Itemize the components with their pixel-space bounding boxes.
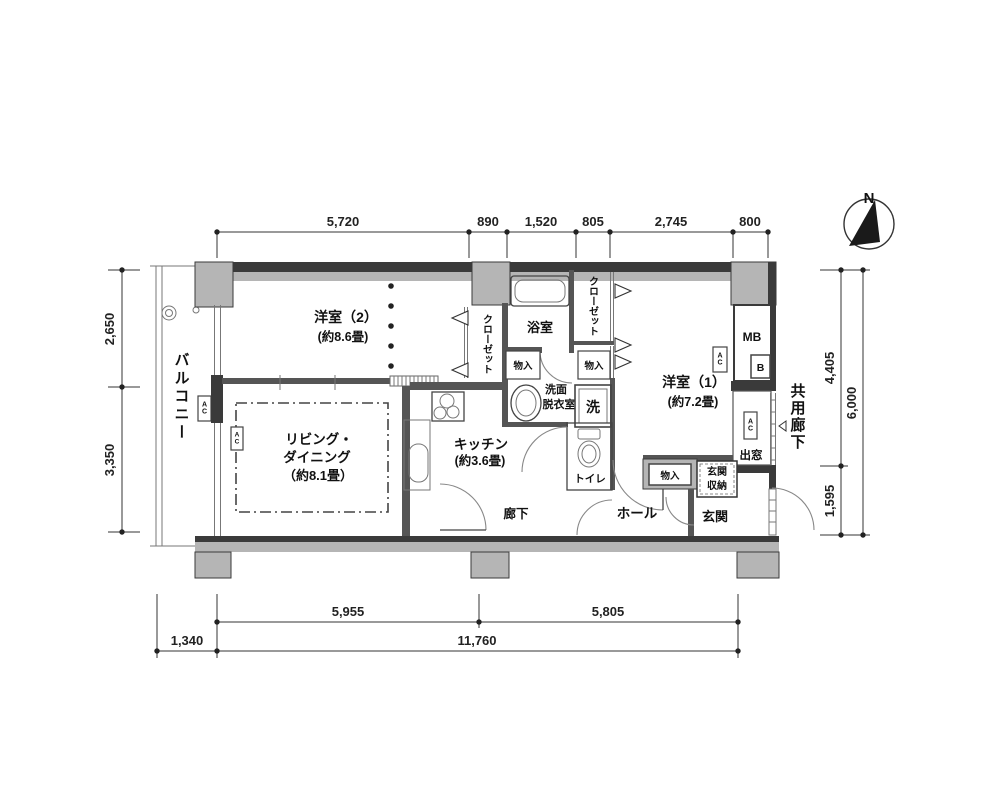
dim-bottom-4: 11,760 [457, 633, 496, 648]
storage-hall-label: 物入 [660, 470, 680, 482]
closet-left-label: クローゼット [481, 314, 493, 374]
dim-bottom-1: 5,955 [332, 604, 365, 619]
balcony-label: バルコニー [173, 352, 190, 442]
dim-right-3: 6,000 [844, 387, 859, 420]
washer-label: 洗 [586, 399, 600, 415]
dim-right-2: 1,595 [822, 485, 837, 518]
pillar-bottom-left [195, 552, 231, 578]
entrance-storage-label-2: 収納 [707, 479, 727, 492]
dimension-left: 2,650 3,350 [102, 267, 140, 534]
folding-door-arrow-icon [452, 311, 468, 325]
corridor-label: 廊下 [503, 506, 529, 521]
pillar-top-middle [472, 262, 510, 305]
closet-right: クローゼット 物入 [572, 272, 631, 490]
balcony-drain-icon [193, 307, 199, 313]
living-label-1: リビング・ [285, 431, 353, 447]
pillar-bottom-middle [471, 552, 509, 578]
entrance-storage-label-1: 玄関 [707, 465, 727, 478]
dim-left-1: 2,650 [102, 313, 117, 346]
storage-left-label: 物入 [513, 360, 533, 372]
ac-label-living: AC [234, 432, 241, 446]
dim-top-3: 1,520 [525, 214, 558, 229]
ac-label-room1: AC [717, 353, 724, 367]
room2-bedroom: 洋室（2） (約8.6畳) [222, 283, 438, 390]
meter-box: MB B [734, 305, 771, 381]
bay-window-label: 出窓 [740, 448, 763, 462]
floorplan-svg: N 5,720 890 1,520 805 2,745 800 2,650 3,… [0, 0, 999, 801]
living-dining: リビング・ ダイニング （約8.1畳） AC [231, 403, 388, 512]
kitchen-label: キッチン [454, 437, 508, 452]
pillar-top-left [195, 262, 233, 307]
compass: N [844, 190, 894, 249]
ac-label-bay: AC [747, 419, 754, 433]
dim-top-4: 805 [582, 214, 604, 229]
bay-window: AC 出窓 [733, 391, 786, 465]
toilet-label: トイレ [574, 473, 606, 485]
living-label-2: ダイニング [283, 449, 351, 465]
room2-label: 洋室（2） [314, 309, 378, 325]
dim-top-5: 2,745 [655, 214, 688, 229]
washroom-label-2: 脱衣室 [543, 397, 576, 411]
dimension-bottom: 5,955 5,805 1,340 11,760 [154, 594, 740, 658]
left-wall-stub [211, 375, 223, 423]
pillar-bottom-right [737, 552, 779, 578]
balcony: バルコニー AC [150, 266, 211, 546]
hall-label: ホール [617, 506, 658, 521]
living-label-3: （約8.1畳） [283, 468, 353, 483]
dim-left-2: 3,350 [102, 444, 117, 477]
toilet-tank-icon [578, 429, 600, 439]
dimension-top: 5,720 890 1,520 805 2,745 800 [214, 214, 770, 258]
storage-right-label: 物入 [584, 360, 604, 372]
room1-size-label: (約7.2畳) [668, 394, 719, 409]
floorplan-page: N 5,720 890 1,520 805 2,745 800 2,650 3,… [0, 0, 999, 801]
ac-label-balcony: AC [201, 402, 208, 416]
dim-bottom-3: 1,340 [171, 633, 204, 648]
room2-size-label: (約8.6畳) [318, 329, 369, 344]
kitchen-sink-icon [409, 444, 428, 482]
common-corridor-label: 共用廊下 [789, 383, 806, 451]
dim-right-1: 4,405 [822, 352, 837, 385]
stove-icon [432, 392, 464, 421]
room1-label: 洋室（1） [662, 374, 726, 390]
closet-left: クローゼット [452, 303, 508, 426]
kitchen: キッチン (約3.6畳) [402, 382, 508, 536]
dim-top-2: 890 [477, 214, 499, 229]
kitchen-size-label: (約3.6畳) [455, 453, 506, 468]
bath-label: 浴室 [527, 320, 553, 335]
window-arrow-icon [779, 421, 786, 431]
mb-label: MB [743, 330, 762, 344]
dimension-right: 4,405 1,595 6,000 [820, 267, 870, 537]
b-label: B [757, 362, 765, 374]
folding-door-arrow-icon [615, 338, 631, 352]
entrance-label: 玄関 [702, 509, 728, 524]
entrance-door [769, 488, 814, 535]
folding-door-arrow-icon [615, 284, 631, 298]
dim-top-1: 5,720 [327, 214, 360, 229]
dim-bottom-2: 5,805 [592, 604, 625, 619]
folding-door-arrow-icon [615, 355, 631, 369]
folding-door-arrow-icon [452, 363, 468, 377]
dim-top-6: 800 [739, 214, 761, 229]
closet-right-label: クローゼット [587, 276, 599, 336]
toilet-room: トイレ [522, 423, 612, 490]
compass-north-label: N [864, 190, 875, 207]
room-divider-dots [388, 283, 394, 369]
washroom-label-1: 洗面 [545, 382, 567, 396]
